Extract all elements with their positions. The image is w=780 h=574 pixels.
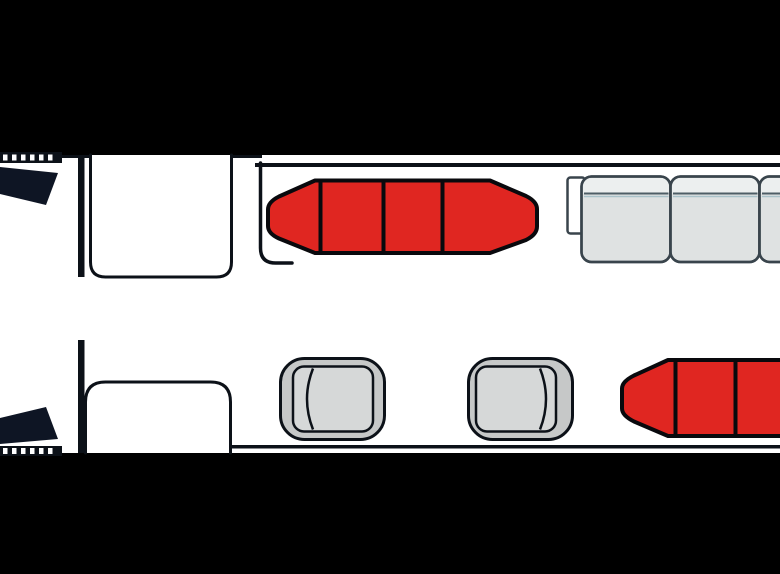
closet-port bbox=[91, 155, 232, 277]
sofa-backrest-strip bbox=[761, 178, 780, 194]
window-tick bbox=[30, 155, 35, 161]
seat-cushion bbox=[476, 367, 556, 432]
window-tick bbox=[3, 155, 8, 161]
window-tick bbox=[39, 448, 44, 454]
closet-starboard bbox=[86, 382, 231, 453]
sofa-backrest-strip bbox=[583, 178, 669, 194]
divan-forward-port bbox=[268, 181, 537, 254]
window-tick bbox=[3, 448, 8, 454]
window-tick bbox=[12, 448, 17, 454]
port-wall-line bbox=[255, 163, 780, 167]
floor-plan-image bbox=[0, 0, 780, 574]
sofa-aft-port bbox=[568, 177, 780, 263]
sofa-cushion bbox=[671, 177, 760, 263]
seat-cushion bbox=[293, 367, 373, 432]
divan-body bbox=[268, 181, 537, 254]
divan-aft-starboard bbox=[622, 360, 780, 436]
sofa-cushion bbox=[582, 177, 671, 263]
starboard-wall-line bbox=[231, 445, 780, 449]
window-tick bbox=[48, 155, 53, 161]
sofa-backrest-strip bbox=[672, 178, 758, 194]
window-tick bbox=[21, 155, 26, 161]
divan-body bbox=[622, 360, 780, 436]
window-tick bbox=[12, 155, 17, 161]
bulkhead-port bbox=[78, 157, 85, 277]
window-tick bbox=[21, 448, 26, 454]
bulkhead-starboard bbox=[78, 340, 85, 453]
window-tick bbox=[39, 155, 44, 161]
club-seat-forward-starboard bbox=[281, 359, 385, 440]
sofa-cushion bbox=[760, 177, 780, 263]
cabin-floor-plan-svg bbox=[0, 0, 780, 574]
window-tick bbox=[48, 448, 53, 454]
window-tick bbox=[30, 448, 35, 454]
club-seat-aft-starboard bbox=[469, 359, 573, 440]
